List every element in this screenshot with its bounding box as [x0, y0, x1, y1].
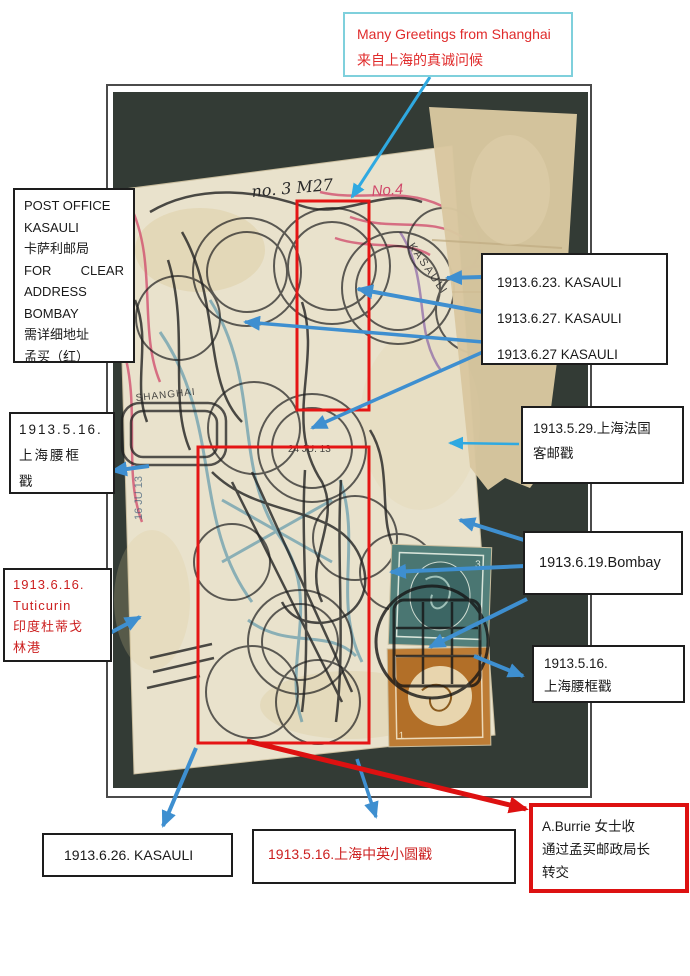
post-office-line: BOMBAY	[24, 303, 124, 325]
exhibit-page: No.4	[0, 0, 690, 976]
post-office-line: POST OFFICE	[24, 195, 124, 217]
greeting-en: Many Greetings from Shanghai	[357, 21, 559, 47]
postcard-photo-background	[113, 92, 588, 788]
kasauli-date: 1913.6.23. KASAULI	[497, 265, 666, 301]
kasauli-date: 1913.6.27 KASAULI	[497, 337, 666, 373]
post-office-line: KASAULI	[24, 217, 124, 239]
shanghai-french-box: 1913.5.29.上海法国 客邮戳	[521, 406, 684, 484]
greeting-box: Many Greetings from Shanghai 来自上海的真诚问候	[343, 12, 573, 77]
post-office-line: 卡萨利邮局	[24, 238, 124, 260]
tuticurin-box: 1913.6.16. Tuticurin 印度杜蒂戈 林港	[3, 568, 112, 662]
kasauli-date: 1913.6.27. KASAULI	[497, 301, 666, 337]
waist-frame-right-box: 1913.5.16. 上海腰框戳	[532, 645, 685, 703]
post-office-line: FOR CLEAR	[24, 260, 124, 282]
aburrie-box: A.Burrie 女士收 通过孟买邮政局长 转交	[529, 803, 689, 893]
kasauli-dates-box: 1913.6.23. KASAULI 1913.6.27. KASAULI 19…	[481, 253, 668, 365]
small-circle-cancel-box: 1913.5.16.上海中英小圆戳	[252, 829, 516, 884]
greeting-zh: 来自上海的真诚问候	[357, 47, 559, 73]
post-office-box: POST OFFICE KASAULI 卡萨利邮局 FOR CLEAR ADDR…	[13, 188, 135, 363]
post-office-line: 需详细地址	[24, 324, 124, 346]
kasauli-bottom-box: 1913.6.26. KASAULI	[42, 833, 233, 877]
post-office-line: 孟买（红）	[24, 346, 124, 368]
waist-frame-left-box: 1913.5.16. 上海腰框 戳	[9, 412, 115, 494]
post-office-line: ADDRESS	[24, 281, 124, 303]
bombay-box: 1913.6.19.Bombay	[523, 531, 683, 595]
